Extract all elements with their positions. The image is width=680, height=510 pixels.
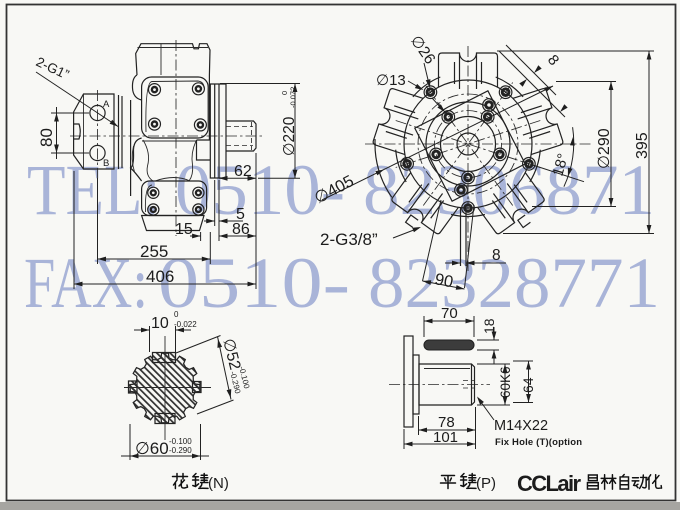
svg-text:0: 0 (174, 310, 179, 319)
svg-text:64: 64 (520, 377, 536, 393)
svg-text:8: 8 (492, 247, 501, 264)
svg-text:TEL:: TEL: (27, 150, 160, 230)
svg-text:(P): (P) (476, 475, 496, 492)
svg-text:62: 62 (234, 163, 252, 180)
svg-text:18: 18 (481, 318, 497, 334)
svg-text:406: 406 (146, 267, 174, 286)
svg-text:B: B (103, 158, 109, 169)
svg-text:∅290: ∅290 (596, 128, 613, 169)
svg-text:10: 10 (151, 315, 169, 332)
svg-text:101: 101 (433, 429, 458, 446)
svg-text:A: A (103, 99, 110, 110)
svg-text:80: 80 (37, 128, 56, 147)
svg-text:FAX:: FAX: (24, 243, 148, 323)
svg-text:-0.290: -0.290 (169, 446, 192, 455)
svg-text:60K6: 60K6 (498, 366, 513, 398)
svg-text:90: 90 (433, 270, 454, 291)
svg-text:395: 395 (634, 132, 651, 159)
svg-text:(N): (N) (208, 475, 229, 492)
svg-text:∅13: ∅13 (376, 72, 406, 89)
svg-text:∅60: ∅60 (135, 439, 169, 458)
svg-text:70: 70 (441, 305, 458, 322)
svg-text:0510-: 0510- (158, 243, 350, 323)
svg-text:-0.100: -0.100 (169, 437, 192, 446)
svg-text:255: 255 (140, 242, 168, 261)
svg-text:-0.072: -0.072 (289, 87, 298, 108)
svg-text:CCLair: CCLair (517, 471, 581, 496)
svg-text:-0.022: -0.022 (174, 320, 197, 329)
svg-text:Fix Hole (T)(option: Fix Hole (T)(option (495, 437, 582, 448)
svg-text:86: 86 (232, 221, 250, 238)
svg-text:∅220: ∅220 (281, 116, 298, 156)
svg-text:15: 15 (175, 221, 193, 238)
svg-text:82328771: 82328771 (368, 243, 660, 323)
svg-text:M14X22: M14X22 (494, 418, 548, 434)
svg-text:2-G3/8”: 2-G3/8” (320, 230, 378, 249)
